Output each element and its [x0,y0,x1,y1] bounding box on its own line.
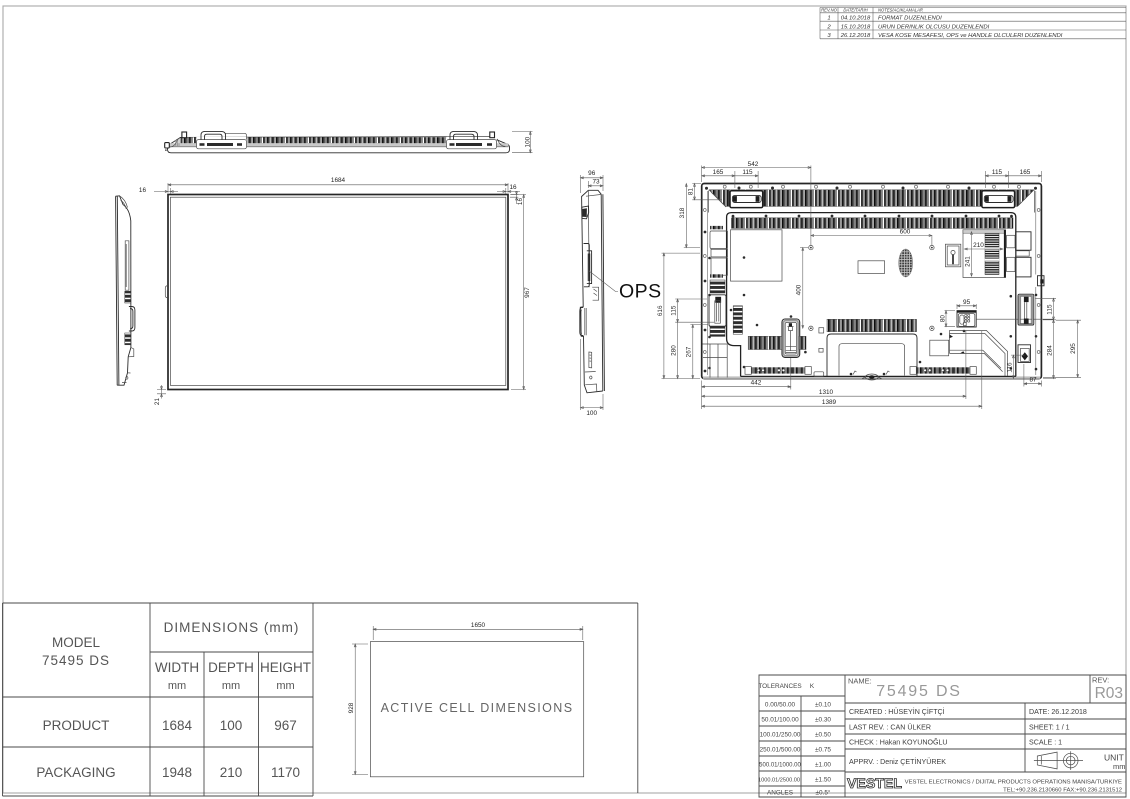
svg-text:NAME:: NAME: [848,677,872,686]
svg-text:±1.00: ±1.00 [815,762,831,769]
svg-text:APPRV. : Deniz ÇETİNYÜREK: APPRV. : Deniz ÇETİNYÜREK [849,757,946,766]
svg-text:OPS: OPS [619,281,662,303]
svg-text:REV.NO: REV.NO [821,8,837,13]
svg-text:VESTEL ELECTRONICS / DIJITAL P: VESTEL ELECTRONICS / DIJITAL PRODUCTS OP… [905,780,1122,786]
svg-text:SHEET: 1 / 1: SHEET: 1 / 1 [1029,724,1070,732]
svg-text:±0.50: ±0.50 [815,732,831,739]
svg-text:±1.50: ±1.50 [815,777,831,784]
svg-text:165: 165 [1020,169,1031,176]
svg-text:210: 210 [973,242,984,249]
svg-text:500.01/1000.00: 500.01/1000.00 [759,763,801,769]
svg-text:75495 DS: 75495 DS [876,683,962,700]
svg-text:VESTEL: VESTEL [847,776,902,791]
svg-text:DIMENSIONS (mm): DIMENSIONS (mm) [164,620,300,635]
svg-text:mm: mm [1113,762,1126,771]
svg-text:280: 280 [670,345,677,356]
svg-text:115: 115 [992,169,1003,176]
svg-text:50.01/100.00: 50.01/100.00 [761,717,799,724]
svg-text:115: 115 [670,305,677,316]
svg-text:SCALE : 1: SCALE : 1 [1029,739,1062,747]
svg-text:±0.30: ±0.30 [815,717,831,724]
svg-text:87: 87 [1029,377,1037,384]
svg-text:±0.5°: ±0.5° [816,789,831,797]
svg-text:116: 116 [1006,362,1013,373]
svg-text:1389: 1389 [822,399,837,406]
svg-text:PACKAGING: PACKAGING [36,765,115,780]
svg-text:542: 542 [748,161,759,168]
svg-text:100: 100 [220,718,243,733]
svg-text:REV:: REV: [1092,676,1109,685]
svg-text:1000.01/2500.00: 1000.01/2500.00 [758,778,800,784]
svg-text:MODEL: MODEL [52,635,101,650]
svg-text:1: 1 [827,16,830,22]
svg-text:241: 241 [964,256,971,267]
svg-text:URUN DERINLIK OLCUSU DUZENLEND: URUN DERINLIK OLCUSU DUZENLENDI [878,24,990,30]
svg-text:2: 2 [826,24,831,30]
svg-text:PRODUCT: PRODUCT [43,718,110,733]
svg-text:95: 95 [963,299,971,306]
svg-text:HEIGHT: HEIGHT [260,660,311,675]
svg-text:100: 100 [586,410,597,417]
svg-text:928: 928 [348,702,355,713]
svg-text:±0.75: ±0.75 [815,747,831,754]
svg-text:16: 16 [517,198,524,206]
svg-text:250.01/500.00: 250.01/500.00 [760,747,801,754]
svg-text:WIDTH: WIDTH [155,660,199,675]
svg-text:1650: 1650 [471,622,486,629]
svg-text:115: 115 [1047,304,1054,315]
svg-text:442: 442 [751,380,762,387]
svg-text:DATE: 26.12.2018: DATE: 26.12.2018 [1029,708,1087,716]
svg-text:73: 73 [592,179,600,186]
svg-text:CHECK : Hakan KOYUNOĞLU: CHECK : Hakan KOYUNOĞLU [849,738,948,747]
svg-text:mm: mm [276,680,294,692]
svg-text:967: 967 [274,718,297,733]
svg-text:100: 100 [524,136,531,147]
svg-text:1684: 1684 [162,718,193,733]
svg-text:600: 600 [900,229,911,236]
svg-text:295: 295 [1070,343,1077,354]
svg-text:96: 96 [588,170,596,177]
svg-text:1170: 1170 [271,765,300,780]
svg-text:UNIT: UNIT [1104,753,1124,763]
svg-text:21: 21 [154,398,161,406]
svg-text:CREATED : HÜSEYİN ÇİFTÇİ: CREATED : HÜSEYİN ÇİFTÇİ [849,707,945,716]
svg-text:967: 967 [524,287,531,298]
svg-text:DATE/TARIH: DATE/TARIH [843,8,868,13]
svg-text:±0.10: ±0.10 [815,702,831,709]
svg-text:mm: mm [222,680,240,692]
svg-text:81: 81 [687,188,694,196]
svg-text:318: 318 [679,207,686,218]
svg-text:TOLERANCES: TOLERANCES [758,683,801,690]
svg-text:NOTES/ACIKLAMALAR: NOTES/ACIKLAMALAR [878,8,923,13]
svg-text:1684: 1684 [331,177,346,184]
svg-text:ACTIVE CELL DIMENSIONS: ACTIVE CELL DIMENSIONS [381,701,574,715]
svg-text:16: 16 [509,184,517,191]
svg-text:100.01/250.00: 100.01/250.00 [760,732,801,739]
svg-text:16: 16 [139,187,147,194]
svg-text:04.10.2018: 04.10.2018 [841,16,871,22]
svg-text:FORMAT DUZENLENDI: FORMAT DUZENLENDI [878,16,942,22]
svg-text:0.00/50.00: 0.00/50.00 [765,702,796,709]
svg-text:75495 DS: 75495 DS [42,653,110,668]
svg-text:ANGLES: ANGLES [767,790,793,797]
svg-text:165: 165 [713,169,724,176]
svg-text:616: 616 [657,305,664,316]
svg-text:TEL:+90.236.2130660 FAX:+90.23: TEL:+90.236.2130660 FAX:+90.236.2131512 [1003,788,1122,794]
svg-text:400: 400 [796,284,803,295]
svg-text:15.10.2018: 15.10.2018 [841,24,871,30]
svg-text:80: 80 [939,315,946,323]
svg-text:284: 284 [1047,345,1054,356]
svg-text:1310: 1310 [819,389,834,396]
svg-text:DEPTH: DEPTH [208,660,254,675]
svg-text:LAST REV. : CAN ÜLKER: LAST REV. : CAN ÜLKER [849,724,931,732]
svg-text:K: K [810,683,815,690]
svg-text:267: 267 [686,346,693,357]
svg-text:R03: R03 [1095,685,1123,702]
svg-text:VESA KOSE MESAFESI, OPS ve HAN: VESA KOSE MESAFESI, OPS ve HANDLE OLCULE… [878,33,1063,39]
svg-text:3: 3 [827,33,831,39]
svg-text:115: 115 [742,169,753,176]
svg-text:210: 210 [220,765,243,780]
svg-text:mm: mm [168,680,186,692]
svg-text:1948: 1948 [162,765,192,780]
svg-text:26.12.2018: 26.12.2018 [840,33,871,39]
